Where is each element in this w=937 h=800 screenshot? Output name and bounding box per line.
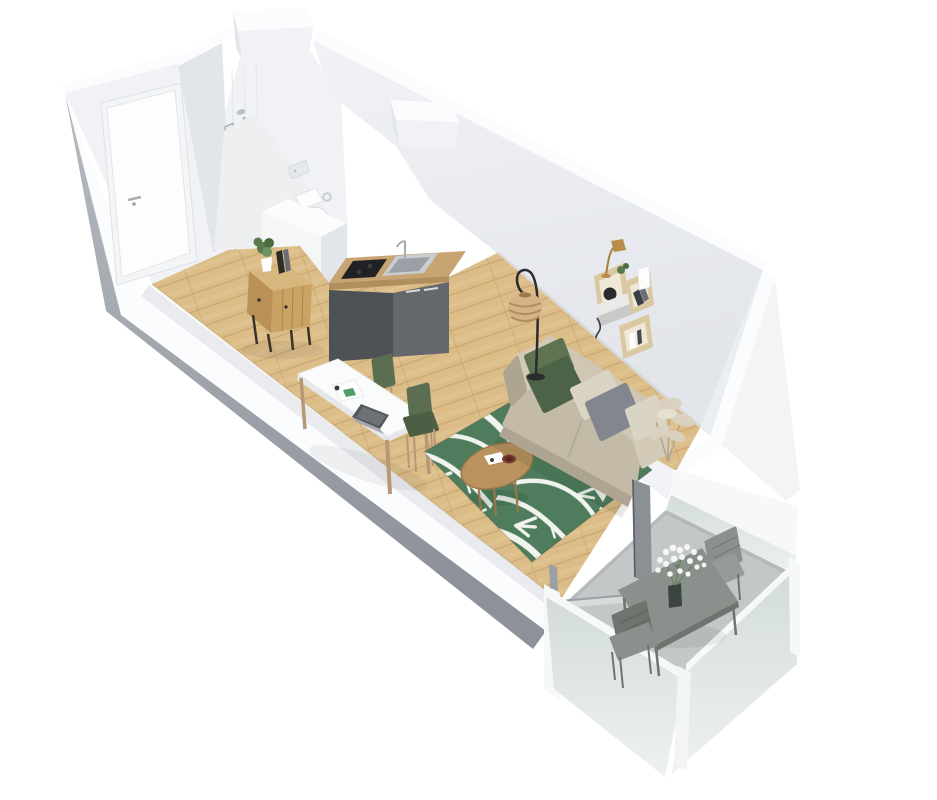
white-cup <box>638 266 650 290</box>
floor-plan-render <box>0 0 937 800</box>
chair1-backrest <box>374 356 393 388</box>
duct-pillar-a-top <box>233 8 313 31</box>
small-bottle <box>335 386 340 391</box>
flower-greenery <box>675 564 679 568</box>
coffee-table-shadow <box>468 490 528 506</box>
plant-leaf-2 <box>264 238 274 248</box>
door-handle-rose <box>132 202 136 206</box>
duct-pillar-b-top <box>390 100 459 122</box>
cabinet-front-face <box>393 282 449 357</box>
chair2-seat <box>405 413 437 435</box>
plant-leaf-3 <box>254 238 263 247</box>
cabinet-side-face <box>329 290 393 362</box>
shelf-plant-leaf <box>623 263 629 269</box>
entrance-door <box>101 83 197 285</box>
duct-pillar-a-face <box>238 27 313 60</box>
track-post <box>549 564 558 591</box>
sideboard-shadow <box>241 341 325 359</box>
burner-1 <box>357 270 361 274</box>
vase <box>668 583 682 608</box>
sideboard-front-face <box>271 284 312 333</box>
kitchenette <box>329 241 466 362</box>
floor-plan-canvas <box>0 0 937 800</box>
small-item <box>490 458 494 462</box>
lamp-shade-cap <box>519 293 531 298</box>
east-corner-post <box>789 557 800 658</box>
sideboard-knob-1 <box>257 298 260 301</box>
white-vase-small <box>629 332 636 349</box>
sideboard-knob-2 <box>284 305 287 308</box>
flush-button <box>294 170 296 172</box>
plant-leaf-4 <box>262 247 272 257</box>
door-leaf <box>107 90 190 277</box>
burner-2 <box>368 264 372 268</box>
duct-pillar-b-face <box>396 120 459 149</box>
